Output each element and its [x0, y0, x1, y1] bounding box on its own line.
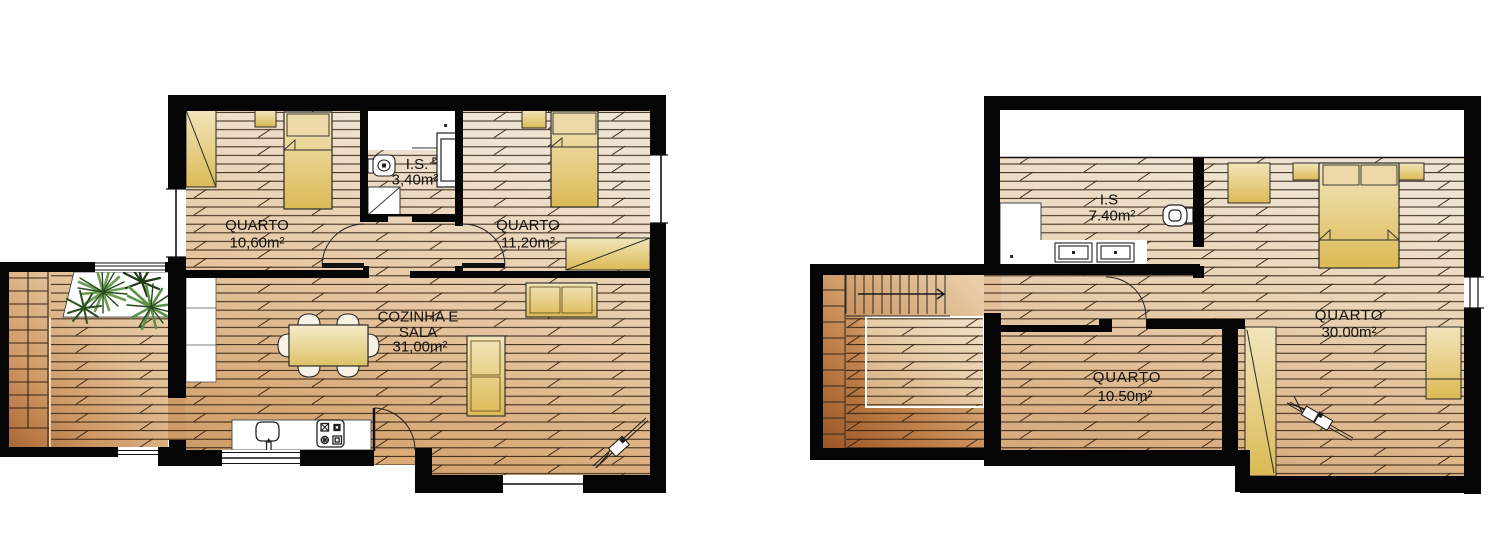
svg-text:QUARTO: QUARTO [1093, 369, 1161, 386]
svg-text:3,40m²: 3,40m² [392, 172, 439, 189]
svg-text:30.00m²: 30.00m² [1321, 324, 1376, 341]
svg-text:I.S: I.S [1100, 192, 1118, 209]
svg-text:COZINHA E: COZINHA E [378, 309, 459, 326]
svg-text:QUARTO: QUARTO [1315, 307, 1383, 324]
svg-text:10,60m²: 10,60m² [229, 235, 284, 252]
svg-text:QUARTO: QUARTO [496, 217, 560, 234]
svg-text:7.40m²: 7.40m² [1089, 208, 1136, 225]
svg-text:I.S.: I.S. [406, 156, 429, 173]
svg-text:11,20m²: 11,20m² [501, 235, 555, 252]
svg-text:QUARTO: QUARTO [225, 217, 289, 234]
svg-text:10.50m²: 10.50m² [1097, 388, 1152, 405]
svg-text:31,00m²: 31,00m² [392, 339, 447, 356]
